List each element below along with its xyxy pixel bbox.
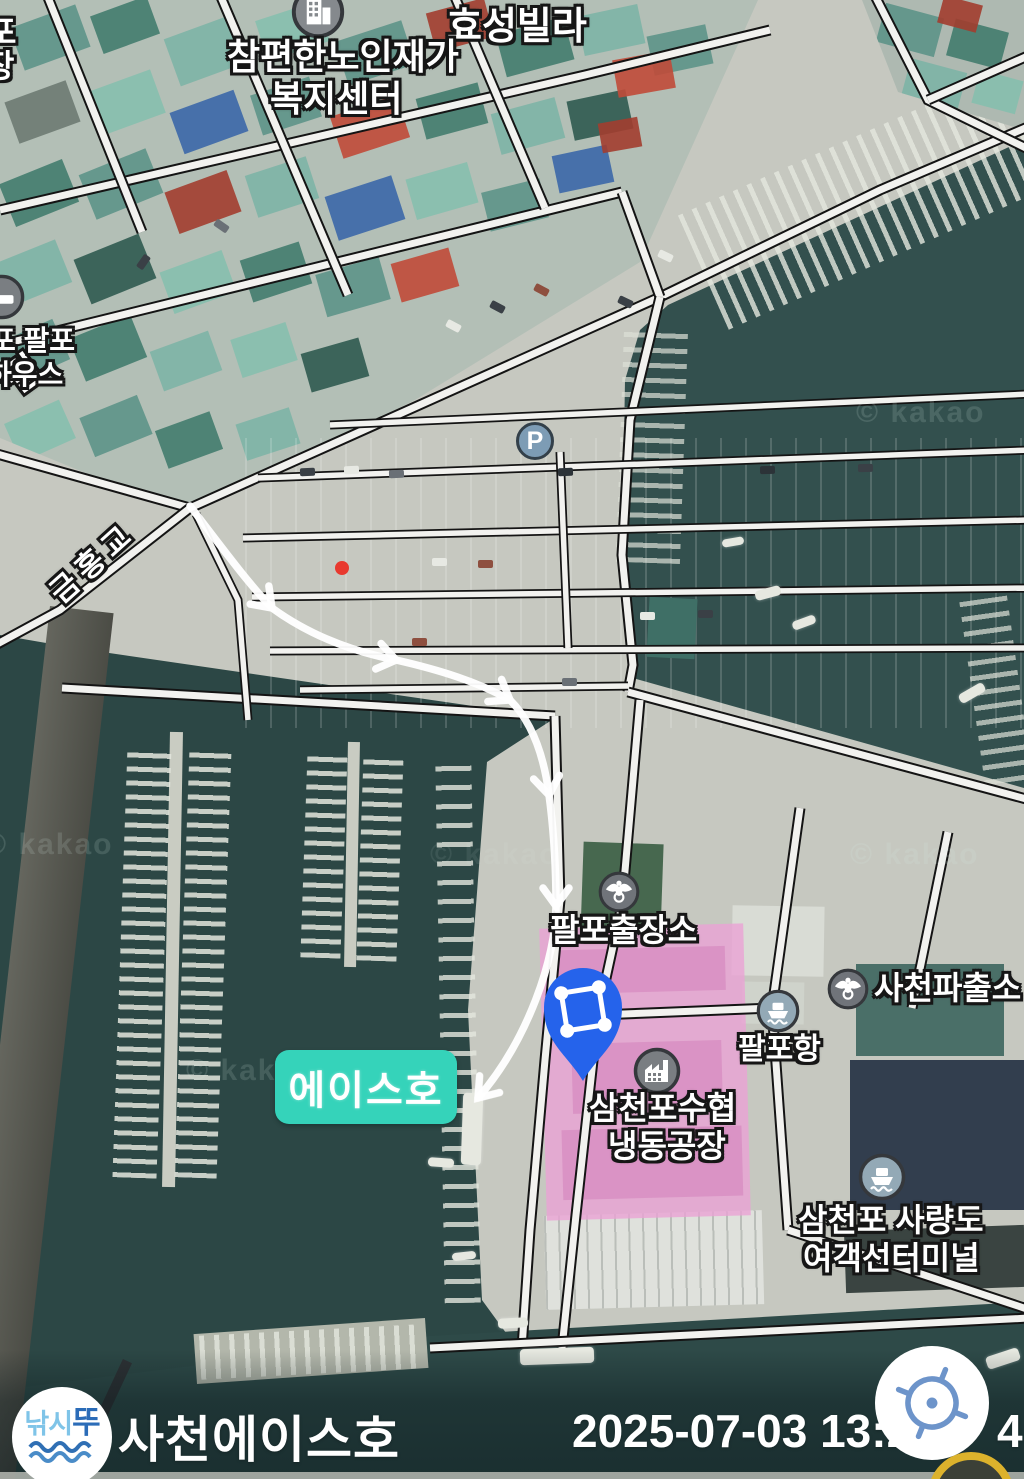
label-guesthouse-line1: 포 팔포 bbox=[0, 326, 75, 355]
parking-icon-letter: P bbox=[527, 427, 544, 456]
label-ferry-terminal-line1: 삼천포 사량도 bbox=[798, 1204, 984, 1238]
app-logo-text: 낚시뚜 bbox=[12, 1407, 112, 1438]
ace-boat-tag-text: 에이스호 bbox=[288, 1058, 443, 1116]
logo-waves-icon bbox=[26, 1440, 98, 1464]
label-welfare-center-line2: 복지센터 bbox=[270, 80, 402, 118]
label-partial-char1: 포 bbox=[0, 16, 16, 50]
app-logo: 낚시뚜 bbox=[12, 1387, 112, 1479]
crosshair-icon bbox=[888, 1359, 976, 1447]
welfare-center-icon bbox=[291, 0, 345, 39]
factory-icon bbox=[633, 1047, 681, 1095]
police-icon bbox=[598, 871, 640, 913]
location-pin-icon bbox=[533, 961, 633, 1085]
police-icon bbox=[827, 968, 869, 1010]
ace-boat-tag: 에이스호 bbox=[275, 1050, 457, 1124]
label-fisheries-line2: 냉동공장 bbox=[608, 1130, 726, 1164]
gps-locate-button[interactable] bbox=[875, 1346, 989, 1460]
label-fisheries-line1: 삼천포수협 bbox=[589, 1092, 736, 1126]
label-sacheon-police-box: 사천파출소 bbox=[874, 972, 1021, 1006]
label-partial-char2: 장 bbox=[0, 50, 14, 84]
label-hyoseong-villa: 효성빌라 bbox=[447, 8, 587, 48]
parking-icon: P bbox=[516, 422, 554, 460]
label-palpo-port: 팔포항 bbox=[738, 1034, 821, 1066]
ferry-icon bbox=[858, 1153, 906, 1201]
label-palpo-branch-office: 팔포출장소 bbox=[550, 914, 697, 948]
label-welfare-center-line1: 참편한노인재가 bbox=[227, 38, 459, 76]
map-stage[interactable]: © kakao © kakao © kakao © kakao © kakao … bbox=[0, 0, 1024, 1479]
ferry-icon bbox=[756, 989, 800, 1033]
footer-timestamp-left: 2025-07-03 13:2 bbox=[572, 1404, 912, 1458]
footer-timestamp-right: 4 bbox=[997, 1404, 1023, 1458]
label-ferry-terminal-line2: 여객선터미널 bbox=[803, 1242, 980, 1276]
label-guesthouse-line2: 하우스 bbox=[0, 360, 63, 389]
bottom-edge-strip bbox=[0, 1472, 1024, 1479]
footer-boat-title: 사천에이스호 bbox=[118, 1400, 400, 1472]
guesthouse-icon bbox=[0, 274, 25, 320]
